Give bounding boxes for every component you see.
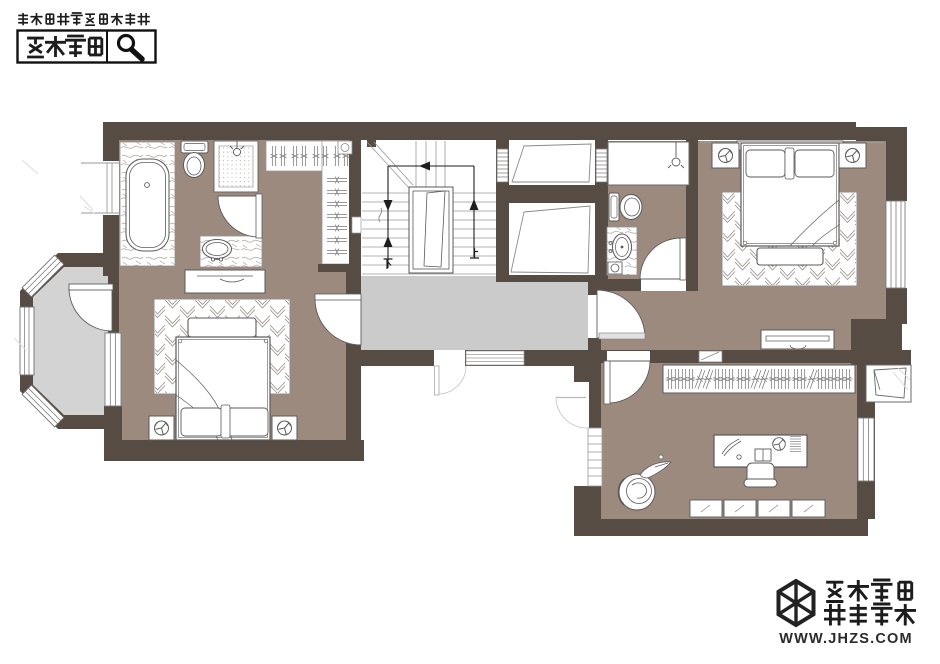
- svg-text:WWW.JHZS.COM: WWW.JHZS.COM: [779, 631, 913, 647]
